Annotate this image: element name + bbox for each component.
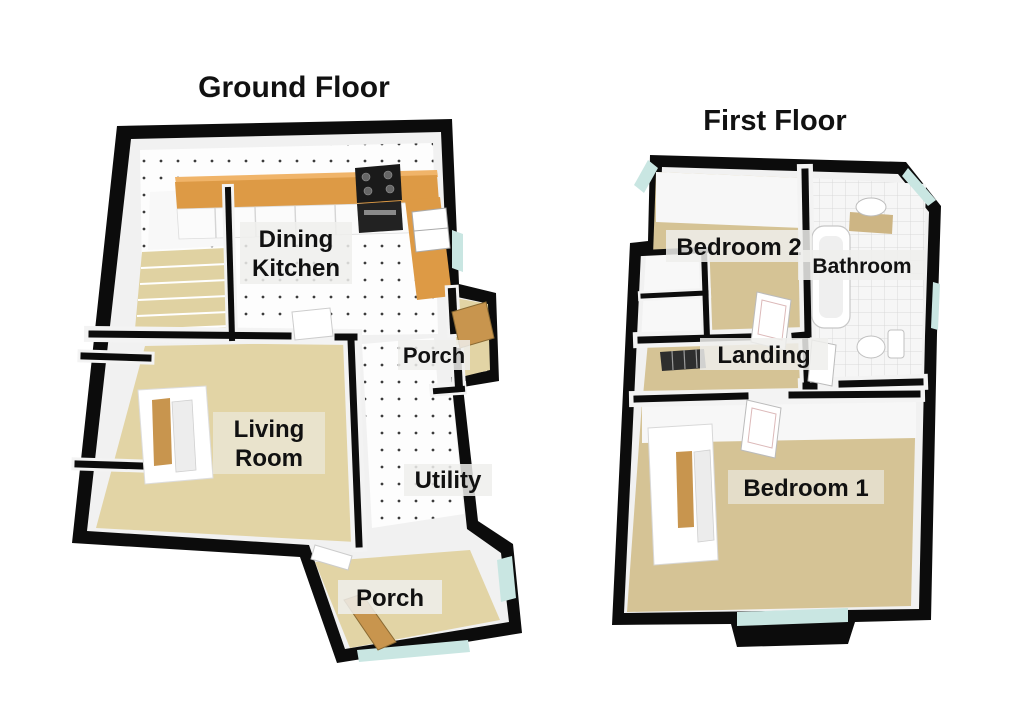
- bathroom-sink: [856, 198, 886, 216]
- oven-handle: [364, 210, 396, 215]
- kitchen-window-glass: [452, 230, 463, 272]
- bedroom2-label: Bedroom 2: [676, 234, 801, 261]
- utility-label: Utility: [415, 467, 482, 494]
- stove-cooktop: [355, 164, 402, 203]
- bathroom-label: Bathroom: [812, 255, 911, 278]
- landing-label: Landing: [717, 342, 810, 369]
- ground-floor-title: Ground Floor: [198, 71, 390, 104]
- stairwell-opening: [660, 349, 706, 371]
- bed: [648, 424, 718, 565]
- floorplan-page: Dining Kitchen Porch Living Room Utility…: [0, 0, 1024, 720]
- living-room-label-line2: Room: [235, 445, 303, 472]
- first-floor-title: First Floor: [703, 105, 846, 137]
- dining-kitchen-label-line1: Dining: [259, 226, 334, 253]
- first-floor-plan: Bedroom 2 Bathroom Landing Bedroom 1 Fir…: [612, 105, 941, 647]
- dining-kitchen-label-line2: Kitchen: [252, 255, 340, 282]
- bedroom1-door: [741, 400, 781, 458]
- front-porch-label: Porch: [356, 585, 424, 612]
- sofa-cushion: [172, 400, 196, 472]
- living-room-label-line1: Living: [234, 416, 305, 443]
- bedroom2-far-wall: [656, 172, 803, 228]
- oven-front: [357, 201, 403, 233]
- floorplan-image: Dining Kitchen Porch Living Room Utility…: [0, 0, 1024, 720]
- side-porch-label: Porch: [403, 343, 465, 368]
- kitchen-living-door: [292, 308, 333, 340]
- bedroom1-label: Bedroom 1: [743, 475, 868, 502]
- sofa-back-wood: [152, 398, 172, 466]
